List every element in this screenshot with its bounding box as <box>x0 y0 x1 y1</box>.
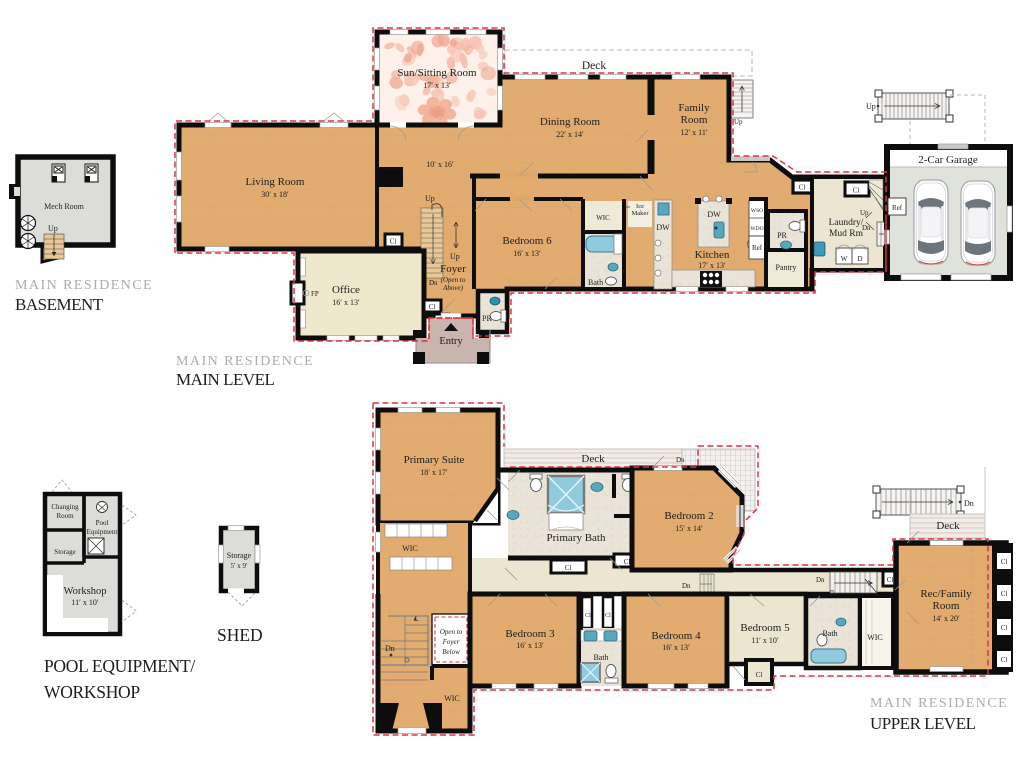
svg-text:Ref: Ref <box>752 244 763 252</box>
svg-text:MAIN RESIDENCE: MAIN RESIDENCE <box>176 354 314 369</box>
svg-text:Up: Up <box>425 194 435 203</box>
svg-text:11′ x 10′: 11′ x 10′ <box>71 598 98 607</box>
svg-text:Bath: Bath <box>593 653 608 662</box>
svg-text:16′ x 13′: 16′ x 13′ <box>516 641 544 650</box>
svg-text:16′ x 13′: 16′ x 13′ <box>332 298 360 307</box>
svg-text:Bedroom 5: Bedroom 5 <box>740 622 790 634</box>
svg-text:Dn: Dn <box>682 582 691 590</box>
svg-text:DW: DW <box>707 210 721 219</box>
svg-text:Open to: Open to <box>440 628 463 636</box>
svg-text:Kitchen: Kitchen <box>695 249 730 261</box>
svg-text:11′ x 10′: 11′ x 10′ <box>751 636 778 645</box>
svg-text:Office: Office <box>332 284 360 296</box>
svg-text:Bedroom 2: Bedroom 2 <box>664 510 713 522</box>
svg-text:10′ x 16′: 10′ x 16′ <box>426 160 454 169</box>
svg-text:Cl: Cl <box>1001 656 1008 664</box>
svg-text:Cl: Cl <box>1001 624 1008 632</box>
svg-text:Cl: Cl <box>585 613 591 619</box>
svg-text:Storage: Storage <box>54 548 75 556</box>
svg-text:(Open to: (Open to <box>441 276 466 284</box>
svg-text:Maker: Maker <box>632 210 650 217</box>
svg-text:Foyer: Foyer <box>440 263 466 275</box>
svg-text:Bedroom 6: Bedroom 6 <box>502 235 552 247</box>
svg-text:Up: Up <box>860 209 869 217</box>
svg-text:16′ x 13′: 16′ x 13′ <box>513 249 541 258</box>
svg-text:SHED: SHED <box>217 625 263 645</box>
svg-text:POOL EQUIPMENT/: POOL EQUIPMENT/ <box>44 656 195 676</box>
svg-text:Bedroom 4: Bedroom 4 <box>651 630 701 642</box>
svg-text:Deck: Deck <box>582 60 607 72</box>
svg-text:Above): Above) <box>442 284 463 292</box>
svg-text:Cl: Cl <box>624 558 631 566</box>
svg-text:Room: Room <box>56 512 74 520</box>
svg-text:Dining Room: Dining Room <box>540 116 601 128</box>
svg-text:Bath: Bath <box>822 629 837 638</box>
svg-text:W: W <box>841 255 848 263</box>
svg-text:Up: Up <box>734 118 743 126</box>
svg-text:22′ x 14′: 22′ x 14′ <box>556 130 584 139</box>
svg-text:17′ x 13′: 17′ x 13′ <box>698 261 726 270</box>
svg-text:Foyer: Foyer <box>442 638 460 646</box>
svg-text:Cl: Cl <box>1001 558 1008 566</box>
svg-text:Primary Suite: Primary Suite <box>404 454 465 466</box>
svg-text:DW: DW <box>656 223 670 232</box>
svg-text:WIC: WIC <box>402 544 418 553</box>
svg-text:Primary Bath: Primary Bath <box>547 532 606 544</box>
svg-text:30′ x 18′: 30′ x 18′ <box>261 190 289 199</box>
svg-text:D: D <box>857 255 862 263</box>
svg-text:Room: Room <box>933 600 960 612</box>
svg-text:Deck: Deck <box>581 453 605 465</box>
svg-text:Workshop: Workshop <box>64 586 107 597</box>
svg-text:18′ x 17′: 18′ x 17′ <box>420 468 448 477</box>
svg-text:Bedroom 3: Bedroom 3 <box>505 628 555 640</box>
svg-text:PR: PR <box>482 314 492 323</box>
svg-text:WIC: WIC <box>444 694 460 703</box>
svg-text:Up: Up <box>866 102 876 111</box>
svg-text:Cl: Cl <box>756 671 763 679</box>
svg-text:FP: FP <box>311 290 319 298</box>
svg-text:Family: Family <box>678 102 710 114</box>
svg-text:Rec/Family: Rec/Family <box>920 588 972 600</box>
svg-text:Equipment: Equipment <box>87 528 118 536</box>
svg-text:MAIN RESIDENCE: MAIN RESIDENCE <box>870 696 1008 711</box>
svg-text:Entry: Entry <box>439 336 463 347</box>
svg-text:WSO: WSO <box>751 208 763 214</box>
svg-text:Up: Up <box>450 252 460 261</box>
svg-text:Cl: Cl <box>565 564 572 572</box>
svg-text:Changing: Changing <box>51 503 79 511</box>
svg-text:15′ x 14′: 15′ x 14′ <box>675 524 703 533</box>
svg-text:16′ x 13′: 16′ x 13′ <box>662 643 690 652</box>
svg-text:Below: Below <box>442 648 460 656</box>
svg-text:Pool: Pool <box>96 519 109 527</box>
svg-text:Cl: Cl <box>1001 590 1008 598</box>
svg-text:Cl: Cl <box>887 576 894 584</box>
svg-text:Cl: Cl <box>853 187 860 195</box>
svg-text:Living Room: Living Room <box>246 176 305 188</box>
svg-text:Cl: Cl <box>799 184 806 192</box>
svg-text:17′ x 13′: 17′ x 13′ <box>423 81 451 90</box>
svg-text:WDO: WDO <box>750 226 763 232</box>
svg-text:Mud Rm: Mud Rm <box>829 229 864 239</box>
svg-text:Dn: Dn <box>385 644 395 653</box>
svg-text:Sun/Sitting Room: Sun/Sitting Room <box>397 67 477 79</box>
svg-text:UPPER LEVEL: UPPER LEVEL <box>870 714 976 733</box>
svg-text:Deck: Deck <box>936 520 960 532</box>
svg-text:Dn: Dn <box>676 456 685 464</box>
svg-text:Cl: Cl <box>605 613 611 619</box>
svg-text:Dn: Dn <box>429 279 438 287</box>
svg-text:Ref: Ref <box>892 204 903 212</box>
svg-text:WIC: WIC <box>596 214 610 222</box>
svg-text:Storage: Storage <box>227 551 252 560</box>
svg-text:Bath: Bath <box>588 278 603 287</box>
svg-text:Pantry: Pantry <box>776 263 797 272</box>
svg-text:Room: Room <box>681 114 708 126</box>
svg-text:WIC: WIC <box>867 633 883 642</box>
svg-text:Dn: Dn <box>964 499 974 508</box>
svg-text:MAIN RESIDENCE: MAIN RESIDENCE <box>15 278 153 293</box>
svg-text:PR: PR <box>777 231 787 240</box>
svg-text:Cl: Cl <box>429 303 436 311</box>
svg-text:WORKSHOP: WORKSHOP <box>44 682 140 702</box>
svg-text:Laundry/: Laundry/ <box>829 218 864 228</box>
svg-text:Cl: Cl <box>390 238 397 246</box>
svg-text:2-Car Garage: 2-Car Garage <box>918 154 978 166</box>
svg-text:Dn: Dn <box>816 576 825 584</box>
svg-text:5′ x 9′: 5′ x 9′ <box>230 562 248 570</box>
svg-text:BASEMENT: BASEMENT <box>15 295 104 314</box>
svg-text:Ice: Ice <box>636 203 644 210</box>
svg-text:Up: Up <box>48 224 58 233</box>
svg-text:Mech Room: Mech Room <box>44 202 85 211</box>
svg-text:12′ x 11′: 12′ x 11′ <box>680 128 707 137</box>
svg-text:MAIN LEVEL: MAIN LEVEL <box>176 370 275 389</box>
svg-text:14′ x 20′: 14′ x 20′ <box>932 614 960 623</box>
